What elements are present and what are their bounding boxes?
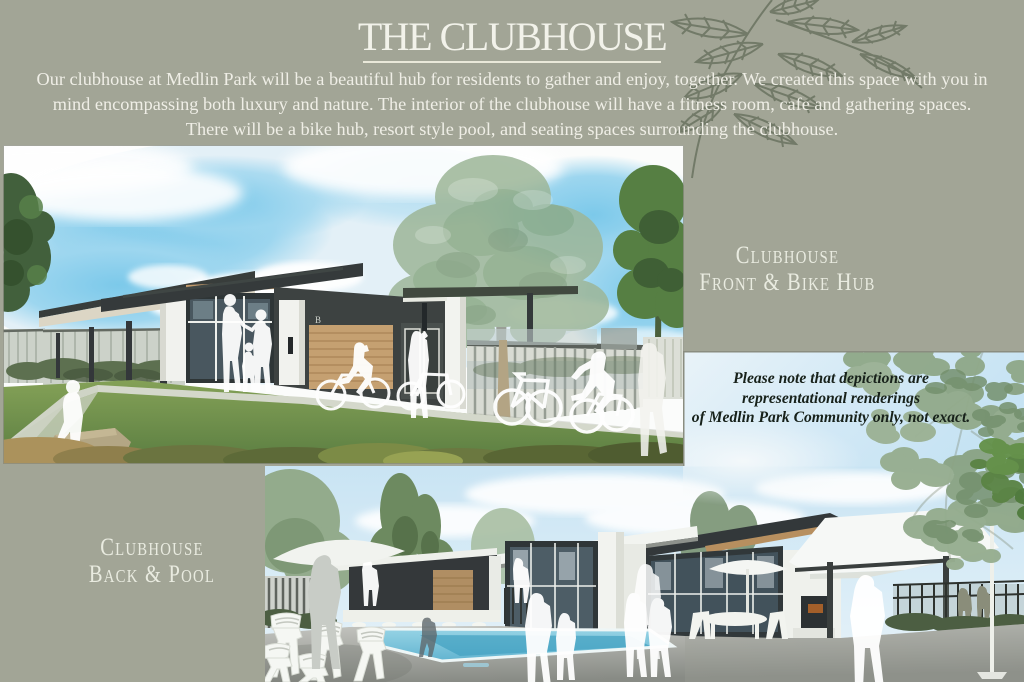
- svg-text:B: B: [315, 315, 321, 325]
